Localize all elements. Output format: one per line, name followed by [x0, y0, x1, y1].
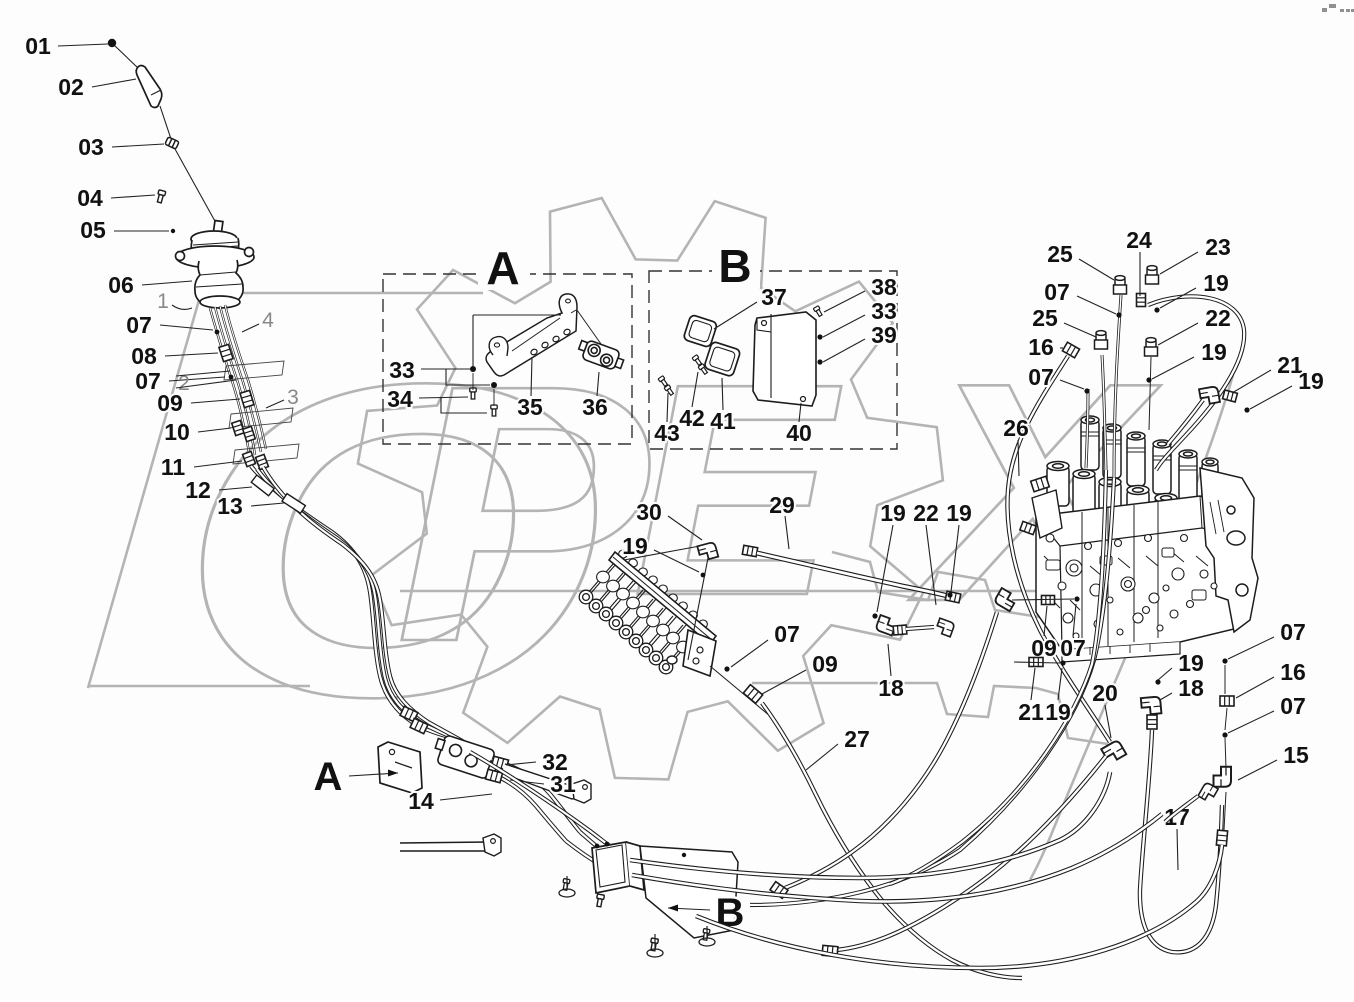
svg-text:35: 35	[517, 394, 543, 420]
svg-text:40: 40	[786, 420, 812, 446]
svg-text:B: B	[718, 240, 751, 292]
svg-text:39: 39	[871, 322, 897, 348]
svg-text:02: 02	[58, 74, 84, 100]
svg-text:19: 19	[946, 500, 972, 526]
svg-text:37: 37	[761, 284, 787, 310]
svg-text:11: 11	[161, 454, 186, 480]
svg-text:09: 09	[812, 651, 838, 677]
svg-text:33: 33	[871, 298, 897, 324]
svg-text:19: 19	[1203, 270, 1229, 296]
svg-text:36: 36	[582, 394, 608, 420]
svg-text:16: 16	[1280, 659, 1306, 685]
svg-text:07: 07	[1280, 693, 1306, 719]
svg-text:38: 38	[871, 274, 897, 300]
svg-text:30: 30	[636, 499, 662, 525]
svg-text:24: 24	[1126, 227, 1152, 253]
svg-text:33: 33	[389, 357, 415, 383]
svg-text:27: 27	[844, 726, 870, 752]
svg-text:19: 19	[1178, 650, 1204, 676]
svg-text:16: 16	[1028, 334, 1054, 360]
svg-text:22: 22	[1205, 305, 1231, 331]
svg-text:07: 07	[1060, 635, 1086, 661]
svg-text:A: A	[314, 755, 343, 799]
svg-text:1: 1	[157, 290, 169, 313]
svg-text:07: 07	[774, 621, 800, 647]
svg-text:22: 22	[913, 500, 939, 526]
svg-text:34: 34	[387, 386, 413, 412]
svg-text:21: 21	[1018, 699, 1044, 725]
svg-text:23: 23	[1205, 234, 1231, 260]
svg-text:A: A	[486, 242, 519, 294]
svg-text:43: 43	[654, 420, 680, 446]
svg-text:19: 19	[1201, 339, 1227, 365]
svg-text:19: 19	[1045, 699, 1071, 725]
svg-text:31: 31	[550, 771, 576, 797]
svg-text:14: 14	[408, 788, 434, 814]
svg-text:20: 20	[1092, 680, 1118, 706]
svg-text:19: 19	[1298, 368, 1324, 394]
svg-text:42: 42	[679, 405, 705, 431]
svg-text:10: 10	[164, 419, 190, 445]
svg-text:12: 12	[185, 477, 211, 503]
svg-text:06: 06	[108, 272, 134, 298]
svg-text:19: 19	[622, 533, 648, 559]
svg-text:26: 26	[1003, 415, 1029, 441]
svg-text:3: 3	[287, 386, 299, 409]
svg-text:29: 29	[769, 492, 795, 518]
svg-text:03: 03	[78, 134, 104, 160]
svg-text:P: P	[395, 310, 651, 719]
svg-text:13: 13	[217, 493, 243, 519]
svg-text:08: 08	[131, 343, 157, 369]
svg-text:07: 07	[126, 312, 152, 338]
svg-text:25: 25	[1032, 305, 1058, 331]
svg-text:18: 18	[878, 675, 904, 701]
svg-text:19: 19	[880, 500, 906, 526]
svg-text:01: 01	[25, 33, 51, 59]
svg-text:25: 25	[1047, 241, 1073, 267]
svg-text:04: 04	[77, 185, 103, 211]
svg-text:4: 4	[262, 309, 274, 332]
svg-text:41: 41	[710, 408, 736, 434]
svg-text:07: 07	[1028, 364, 1054, 390]
svg-text:05: 05	[80, 217, 106, 243]
svg-text:07: 07	[1280, 619, 1306, 645]
svg-text:15: 15	[1283, 742, 1309, 768]
svg-text:07: 07	[1044, 279, 1070, 305]
svg-text:18: 18	[1178, 675, 1204, 701]
